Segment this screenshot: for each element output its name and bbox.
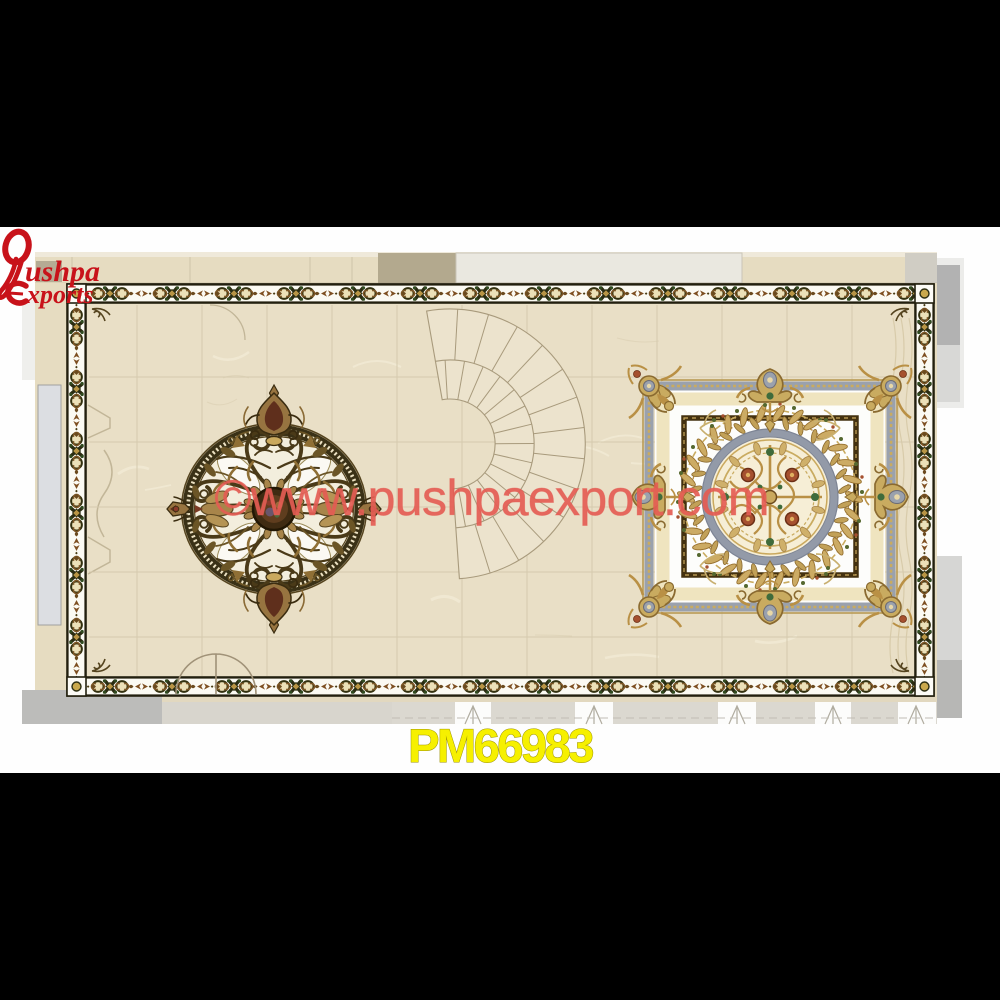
svg-text:©www.pushpaexport.com: ©www.pushpaexport.com	[215, 470, 770, 526]
svg-text:PM66983: PM66983	[408, 719, 593, 772]
svg-text:xports: xports	[26, 280, 93, 309]
